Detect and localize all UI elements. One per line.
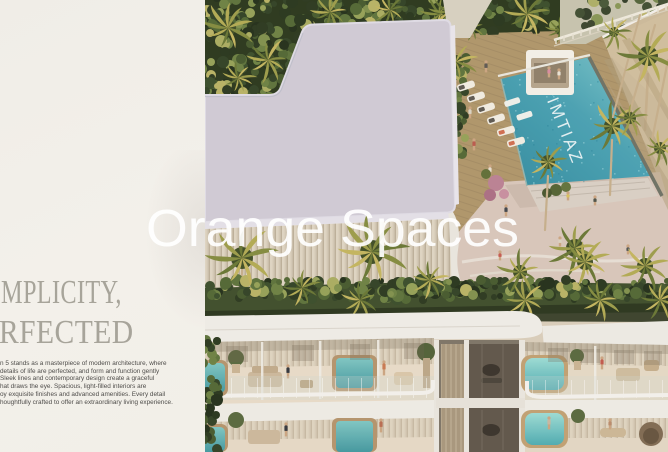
svg-text:Orange Spaces: Orange Spaces <box>146 200 519 258</box>
